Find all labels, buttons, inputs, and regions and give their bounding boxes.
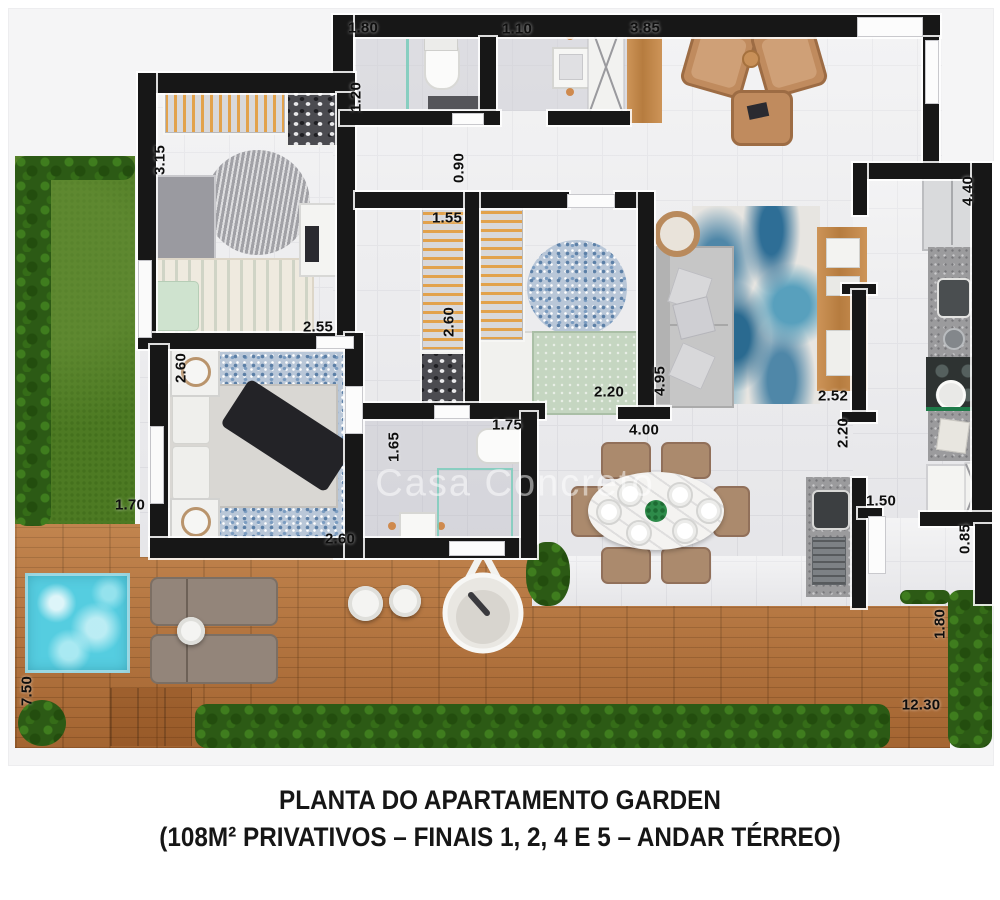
caption: PLANTA DO APARTAMENTO GARDEN (108M² PRIV… [0,782,1000,856]
wall [548,111,630,125]
pillow-green [153,281,199,331]
shower-glass [406,39,409,109]
vanity [428,96,480,110]
fridge-door-seam [951,173,953,245]
entrance-door [925,40,939,104]
door-patio [449,541,505,556]
shoe-shelf [286,85,344,147]
title-line1: PLANTA DO APARTAMENTO GARDEN [50,782,950,819]
daybed [146,175,216,263]
monitor [305,226,319,262]
watermark: Casa Concreto [375,463,654,506]
faucet [943,328,965,350]
floor-lamp [742,50,760,68]
sconce [566,88,574,96]
bush [18,700,66,746]
hedge-top [15,156,135,180]
closet-rail [420,202,470,352]
wall [465,192,479,410]
floor-plan-image: 1.801.201.103.850.903.152.551.552.602.60… [0,0,1000,900]
closet-rail [477,202,525,342]
bbq-sink [812,490,850,530]
outdoor-pouf [389,585,421,617]
pillow [172,446,210,500]
lamp [181,507,211,537]
round-rug-gray [205,150,310,255]
door-master [345,386,363,434]
laundry-basin [559,54,583,80]
dishes [826,238,860,268]
wall [638,192,654,418]
wall [333,15,940,37]
wall [972,163,992,523]
bbq-grill [812,537,846,585]
door-service-exit [868,516,886,574]
sun-lounger [150,634,278,684]
coffee-ottoman [731,90,793,146]
round-rug-blue [527,240,627,336]
hanging-egg-chair [435,545,531,657]
pool [25,573,130,673]
sliding-door [857,17,923,37]
plate [626,520,652,546]
wall [345,333,363,558]
side-table [177,617,205,645]
kitchen-sink [937,278,971,318]
outdoor-pouf [348,586,383,621]
wall [975,524,992,604]
wall [140,73,355,93]
dimension-tick [842,412,876,422]
sofa-backrest [652,246,670,404]
door-bedroom2 [567,194,615,208]
window [138,260,152,338]
plate [696,498,722,524]
sconce [388,522,396,530]
dining-chair [601,547,651,584]
hedge-right-top [900,590,950,604]
door-bathroom1 [452,113,484,125]
round-decor [654,211,700,257]
hedge-left [15,156,51,526]
pot [936,380,966,410]
plate [672,518,698,544]
cutting-board [936,418,970,454]
deck-steps [110,688,192,746]
window [150,426,164,504]
door-bedroom1 [316,336,354,349]
wall [355,192,569,208]
title-line2: (108M² PRIVATIVOS – FINAIS 1, 2, 4 E 5 –… [50,819,950,856]
bed2-duvet [532,331,638,415]
lamp [181,357,211,387]
hedge-bottom [195,704,890,748]
dining-chair [661,547,711,584]
dimension-tick [618,407,670,419]
wall [852,290,866,418]
plate [667,482,693,508]
door-bathroom2 [434,405,470,419]
sun-lounger [150,577,278,626]
pillow [172,390,210,444]
wall [337,93,355,335]
wall [852,478,866,608]
wall [853,163,867,215]
toilet-tank [424,38,458,51]
hedge-right [948,590,992,748]
